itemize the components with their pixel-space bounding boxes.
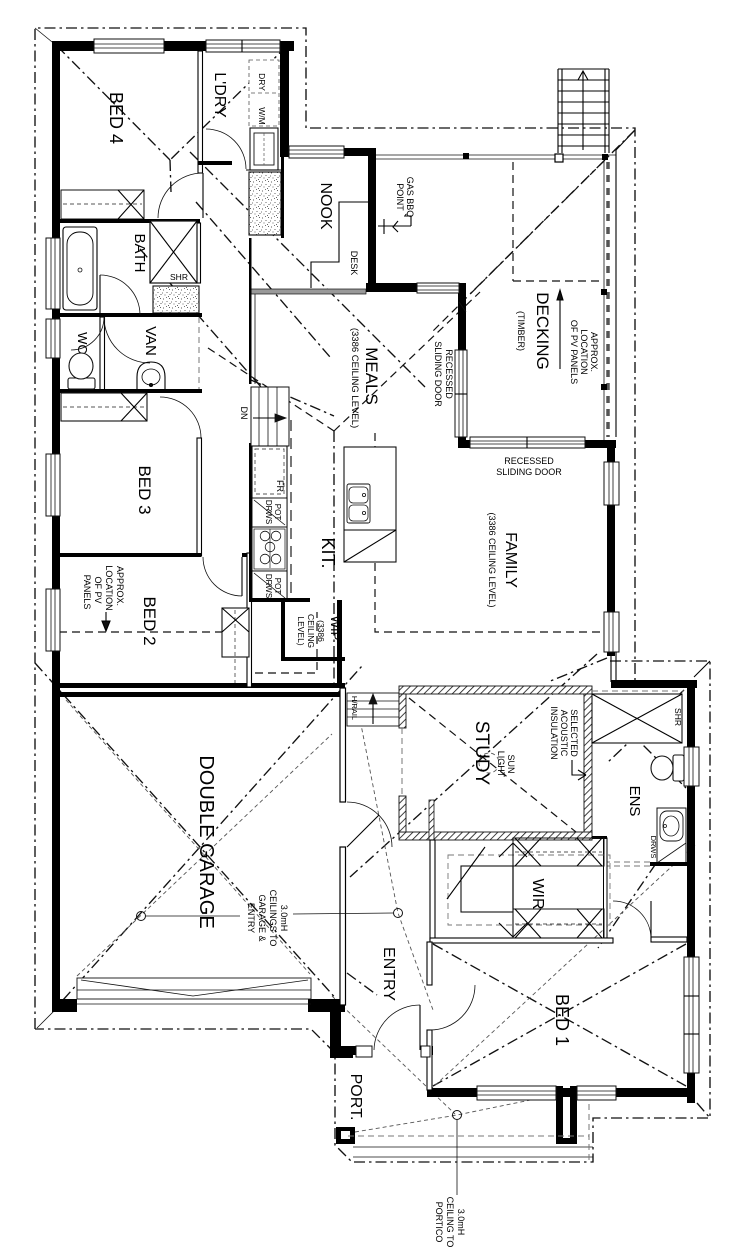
svg-text:(3386 CEILING LEVEL): (3386 CEILING LEVEL) [349, 328, 360, 428]
svg-text:DRWS: DRWS [264, 500, 273, 524]
svg-text:OF PV PANELS: OF PV PANELS [569, 320, 579, 384]
svg-text:SELECTED: SELECTED [569, 709, 579, 757]
svg-text:SLIDING DOOR: SLIDING DOOR [496, 467, 562, 477]
svg-text:ENS: ENS [626, 786, 643, 817]
svg-text:LIGHT: LIGHT [496, 751, 506, 778]
svg-text:ENTRY: ENTRY [246, 903, 256, 933]
svg-text:CEILING TO: CEILING TO [445, 1197, 455, 1248]
svg-text:(3386: (3386 [316, 620, 326, 642]
svg-text:FAMILY: FAMILY [502, 532, 519, 588]
svg-text:BED 3: BED 3 [135, 465, 154, 514]
svg-text:NOOK: NOOK [317, 182, 334, 229]
svg-text:PORTICO: PORTICO [434, 1202, 444, 1243]
svg-text:POINT: POINT [395, 183, 405, 211]
svg-text:MEALS: MEALS [362, 347, 381, 405]
svg-text:GAS BBQ: GAS BBQ [405, 177, 415, 218]
svg-text:LOCATION: LOCATION [104, 565, 114, 610]
svg-text:DRWS: DRWS [264, 574, 273, 598]
svg-text:SHR: SHR [673, 708, 683, 726]
svg-text:DRWS: DRWS [649, 836, 658, 859]
svg-text:KIT.: KIT. [318, 537, 338, 568]
svg-text:GARAGE &: GARAGE & [257, 894, 267, 941]
svg-text:APPROX.: APPROX. [115, 566, 125, 606]
svg-text:STUDY: STUDY [471, 721, 492, 786]
svg-text:APPROX.: APPROX. [589, 332, 599, 372]
svg-text:LEVEL): LEVEL) [296, 616, 306, 645]
svg-text:BED 4: BED 4 [106, 92, 126, 144]
svg-text:FR: FR [275, 480, 285, 492]
svg-text:POT: POT [273, 504, 282, 521]
svg-text:PORT.: PORT. [347, 1074, 364, 1121]
svg-text:3.0mH: 3.0mH [456, 1209, 466, 1236]
svg-text:WC: WC [75, 332, 90, 354]
svg-text:BATH: BATH [131, 234, 148, 273]
svg-text:RECESSED: RECESSED [504, 456, 554, 466]
svg-text:L'DRY: L'DRY [211, 72, 228, 118]
svg-text:CEILING: CEILING [306, 614, 316, 648]
svg-text:POT: POT [273, 578, 282, 595]
svg-text:DESK: DESK [349, 251, 359, 276]
svg-text:DRY: DRY [257, 73, 267, 91]
svg-text:SLIDING DOOR: SLIDING DOOR [433, 341, 443, 407]
svg-text:SHR: SHR [170, 272, 188, 282]
svg-text:BED 1: BED 1 [552, 994, 572, 1046]
svg-text:ENTRY: ENTRY [380, 947, 397, 1001]
svg-text:3.0mH: 3.0mH [279, 905, 289, 932]
svg-text:WIR: WIR [529, 878, 546, 909]
svg-text:ACOUSTIC: ACOUSTIC [559, 710, 569, 757]
svg-text:RECESSED: RECESSED [444, 349, 454, 399]
svg-text:DOUBLE GARAGE: DOUBLE GARAGE [195, 755, 217, 928]
svg-text:INSULATION: INSULATION [549, 706, 559, 759]
svg-text:(3386 CEILING LEVEL): (3386 CEILING LEVEL) [487, 512, 497, 607]
svg-text:BED 2: BED 2 [140, 596, 159, 645]
svg-text:WIP: WIP [328, 616, 343, 641]
svg-text:SUN: SUN [506, 754, 516, 773]
svg-text:DN: DN [239, 407, 249, 420]
svg-text:DECKING: DECKING [533, 292, 552, 369]
svg-text:W/M: W/M [257, 107, 267, 124]
svg-text:OF PV: OF PV [93, 576, 103, 603]
svg-text:(TIMBER): (TIMBER) [516, 311, 526, 351]
svg-text:H/RAIL: H/RAIL [350, 696, 359, 720]
svg-text:PANELS: PANELS [82, 575, 92, 610]
svg-text:VAN: VAN [142, 326, 159, 356]
svg-text:CEILINGS TO: CEILINGS TO [268, 890, 278, 947]
svg-text:LOCATION: LOCATION [579, 329, 589, 374]
